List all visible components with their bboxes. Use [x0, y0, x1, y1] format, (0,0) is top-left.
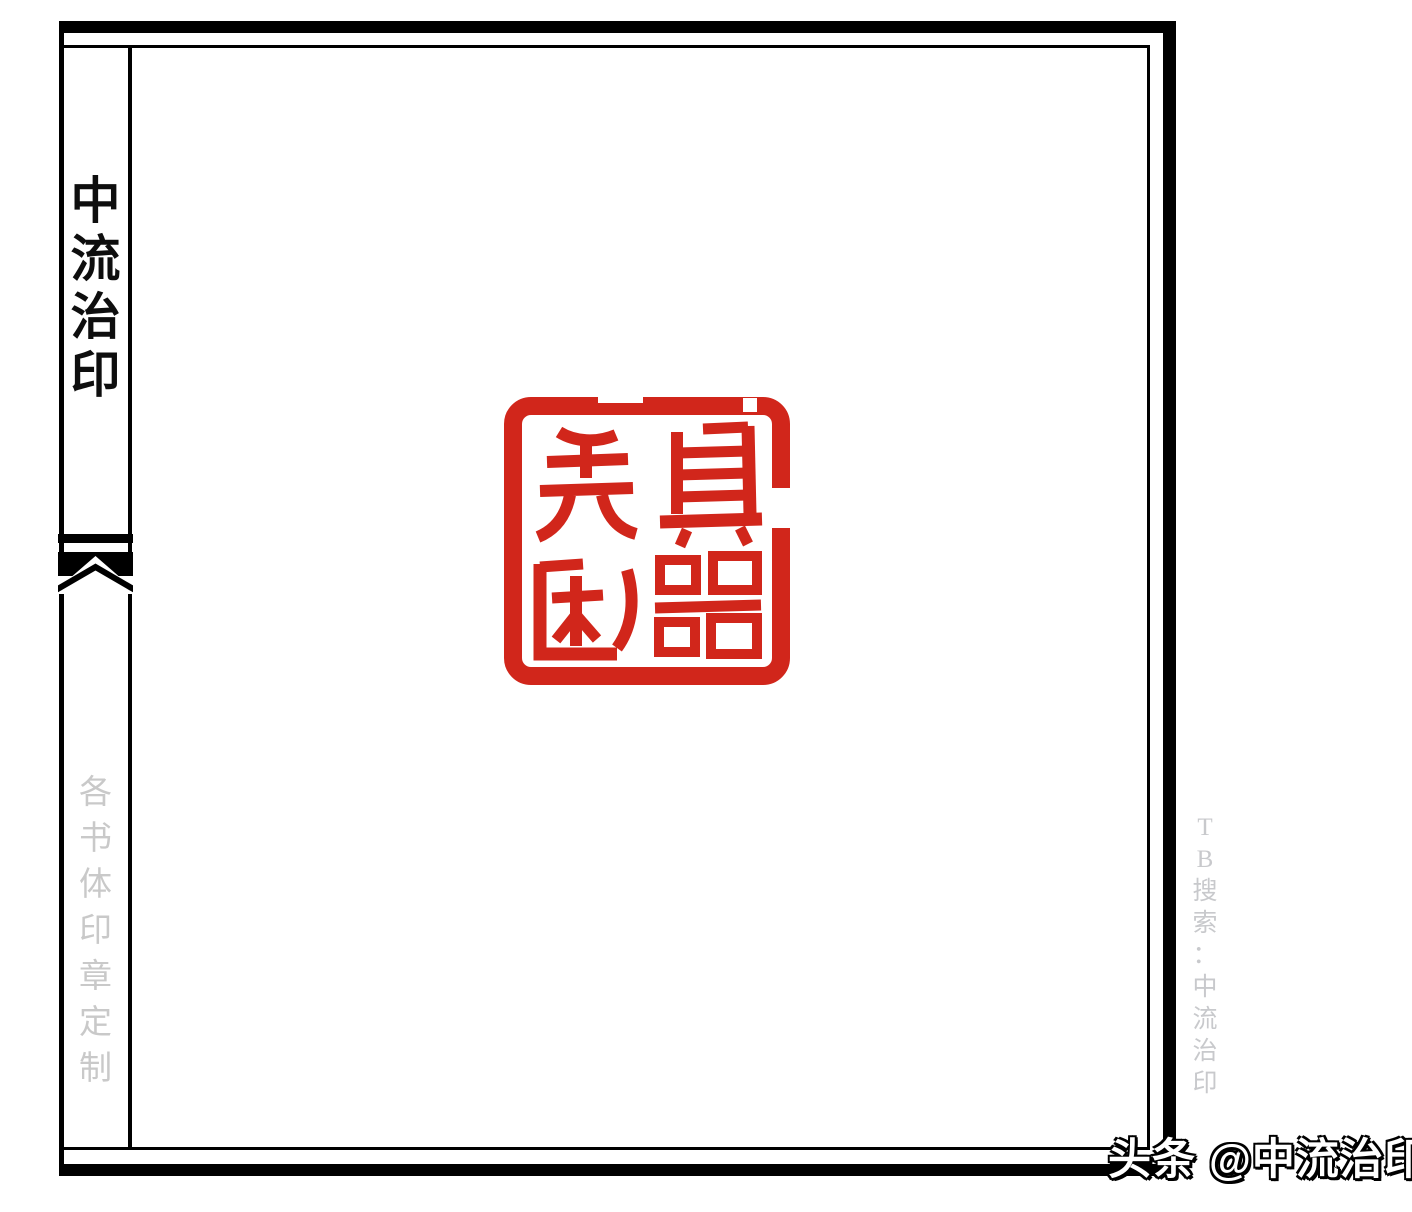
right-margin-char: T — [1197, 812, 1212, 844]
frame-bottom-bar — [59, 1164, 1176, 1176]
page: { "page": { "background": "#ffffff", "fr… — [0, 0, 1412, 1212]
right-margin-char: 中 — [1192, 972, 1217, 1004]
right-margin-char: 流 — [1192, 1004, 1217, 1036]
watermark: 头条 @中流治印 — [1108, 1139, 1408, 1182]
inner-bottom-line — [61, 1147, 1150, 1150]
spine-ribbon — [58, 530, 133, 594]
seal-character-top-right — [660, 426, 762, 546]
right-margin-char: ： — [1192, 940, 1217, 972]
spine-footer-char: 制 — [79, 1046, 112, 1092]
seal-border-break — [743, 398, 757, 412]
seal-impression — [503, 396, 791, 686]
right-margin-char: 搜 — [1192, 876, 1217, 908]
seal-character-top-left — [538, 432, 636, 537]
spine-title-char: 中 — [71, 172, 121, 230]
seal-character-bottom-left — [540, 564, 632, 654]
ribbon-rule — [58, 534, 133, 543]
seal-border-break — [769, 488, 791, 528]
spine-footer-text: 各 书 体 印 章 定 制 — [63, 770, 128, 1092]
right-margin-char: 治 — [1192, 1036, 1217, 1068]
spine-footer-char: 体 — [79, 862, 112, 908]
seal-border-break — [598, 396, 643, 403]
inner-top-line — [61, 45, 1150, 48]
spine-title: 中 流 治 印 — [63, 172, 128, 404]
spine-footer-char: 印 — [79, 908, 112, 954]
spine-footer-char: 各 — [79, 770, 112, 816]
spine-footer-char: 定 — [79, 1000, 112, 1046]
spine-title-char: 流 — [71, 230, 121, 288]
spine-footer-char: 书 — [79, 816, 112, 862]
seal-character-bottom-right — [655, 556, 761, 654]
frame-top-bar — [59, 21, 1176, 33]
spine-footer-char: 章 — [79, 954, 112, 1000]
spine-title-char: 治 — [71, 288, 121, 346]
right-margin-char: 印 — [1192, 1068, 1217, 1100]
right-margin-char: B — [1197, 844, 1214, 876]
right-margin-char: 索 — [1192, 908, 1217, 940]
right-margin-text: T B 搜 索 ： 中 流 治 印 — [1180, 812, 1230, 1100]
spine-title-char: 印 — [71, 346, 121, 404]
inner-right-line — [1147, 45, 1150, 1150]
frame-right-bar — [1163, 21, 1176, 1176]
spine-divider-line — [128, 45, 132, 1147]
